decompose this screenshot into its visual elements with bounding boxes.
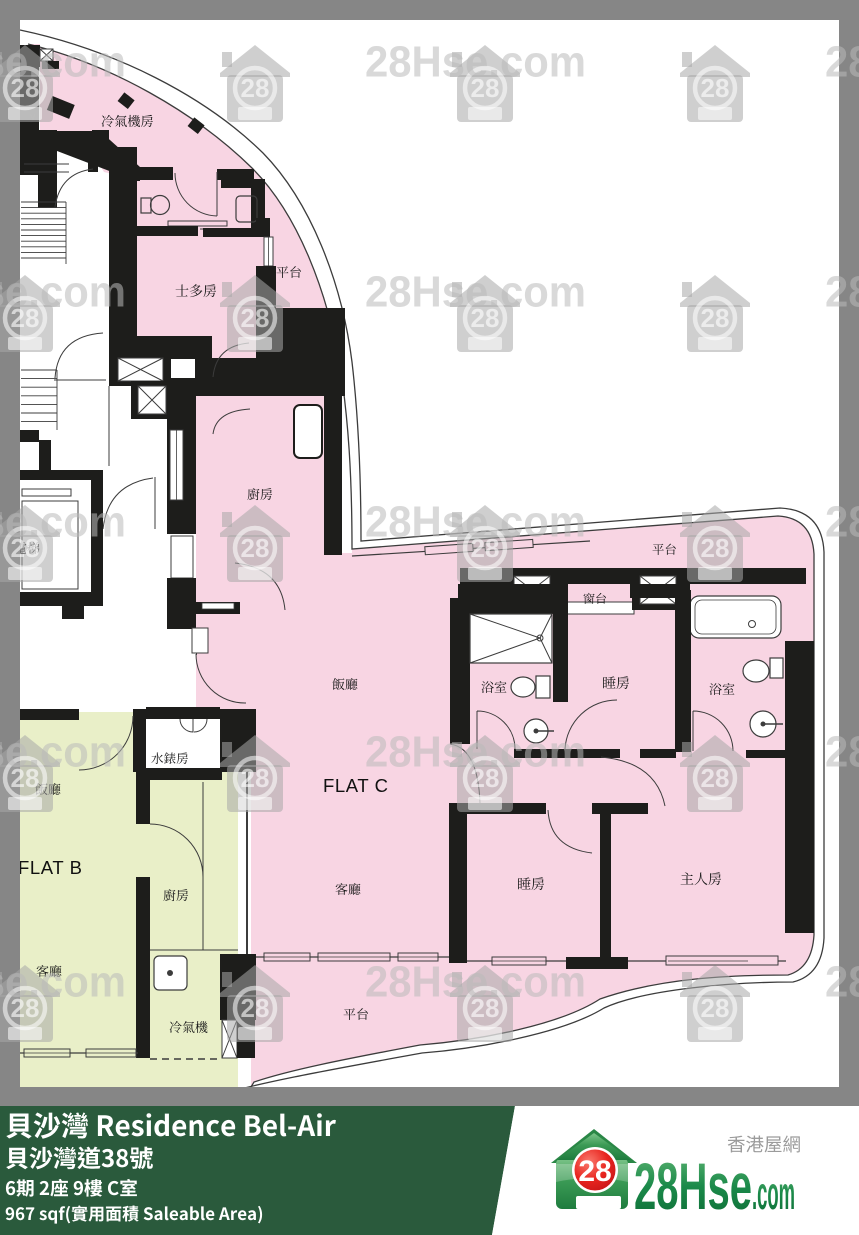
svg-text:FLAT C: FLAT C — [323, 775, 389, 796]
svg-text:.com: .com — [752, 1167, 795, 1219]
svg-text:28Hse.com: 28Hse.com — [825, 498, 859, 547]
svg-text:28Hse.com: 28Hse.com — [0, 268, 126, 317]
svg-text:28: 28 — [578, 1155, 611, 1188]
svg-text:28Hse.com: 28Hse.com — [825, 268, 859, 317]
svg-text:28Hse.com: 28Hse.com — [0, 38, 126, 87]
svg-text:28Hse.com: 28Hse.com — [825, 728, 859, 777]
svg-text:28Hse: 28Hse — [634, 1149, 752, 1223]
svg-text:28Hse.com: 28Hse.com — [0, 498, 126, 547]
svg-text:28Hse.com: 28Hse.com — [365, 728, 586, 777]
svg-text:28Hse.com: 28Hse.com — [825, 958, 859, 1007]
svg-text:28Hse.com: 28Hse.com — [365, 498, 586, 547]
svg-text:28Hse.com: 28Hse.com — [825, 38, 859, 87]
svg-text:FLAT B: FLAT B — [18, 857, 83, 878]
svg-text:28Hse.com: 28Hse.com — [0, 958, 126, 1007]
svg-text:28Hse.com: 28Hse.com — [365, 268, 586, 317]
svg-text:28Hse.com: 28Hse.com — [0, 728, 126, 777]
svg-text:28Hse.com: 28Hse.com — [365, 958, 586, 1007]
svg-text:28Hse.com: 28Hse.com — [365, 38, 586, 87]
